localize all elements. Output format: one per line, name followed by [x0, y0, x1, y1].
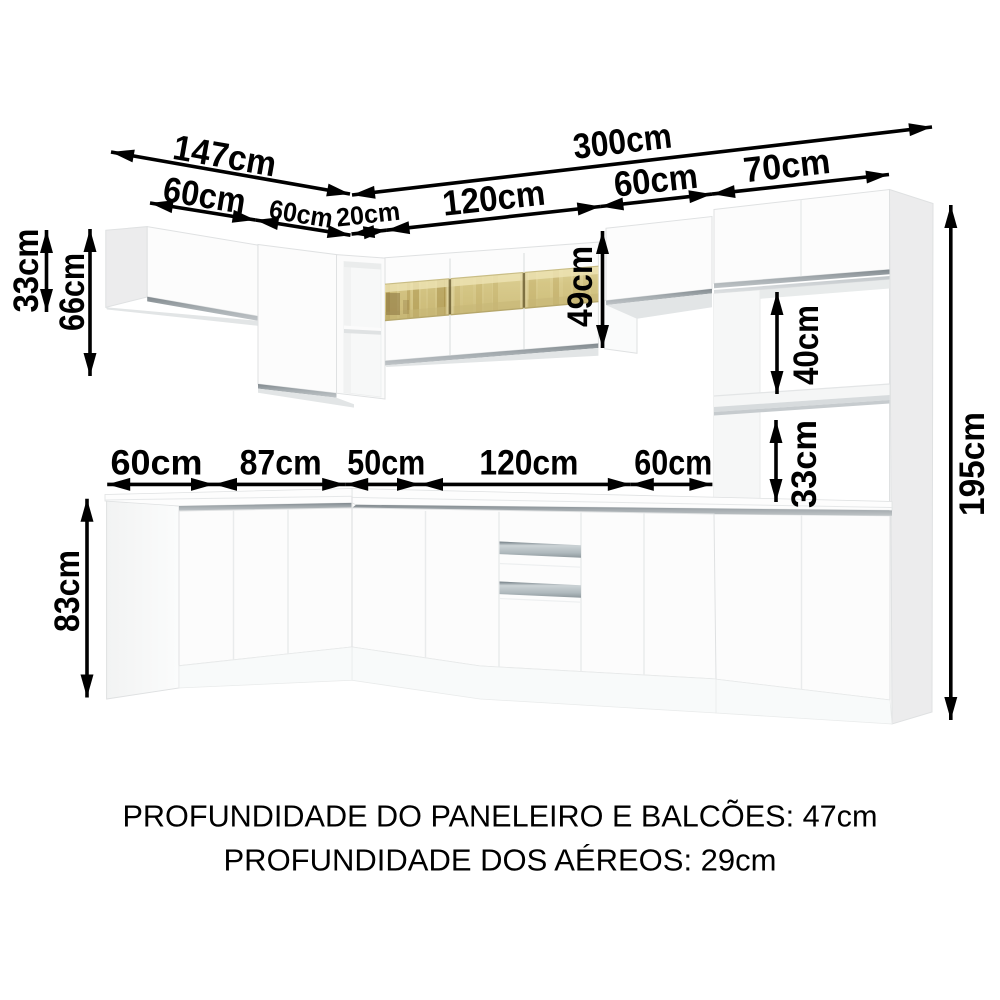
svg-text:33cm: 33cm [784, 420, 824, 508]
svg-text:60cm: 60cm [111, 442, 203, 482]
svg-text:PROFUNDIDADE DOS AÉREOS: 29cm: PROFUNDIDADE DOS AÉREOS: 29cm [224, 843, 777, 878]
svg-text:83cm: 83cm [47, 550, 87, 632]
svg-text:50cm: 50cm [347, 442, 425, 482]
svg-text:60cm: 60cm [634, 442, 712, 482]
svg-text:120cm: 120cm [479, 442, 578, 482]
svg-text:66cm: 66cm [52, 253, 92, 331]
svg-text:PROFUNDIDADE DO PANELEIRO E BA: PROFUNDIDADE DO PANELEIRO E BALCÕES: 47c… [123, 799, 878, 834]
svg-text:40cm: 40cm [786, 305, 826, 385]
svg-text:87cm: 87cm [240, 442, 322, 482]
svg-text:195cm: 195cm [952, 412, 992, 516]
svg-text:49cm: 49cm [560, 246, 600, 327]
svg-text:33cm: 33cm [6, 229, 46, 313]
